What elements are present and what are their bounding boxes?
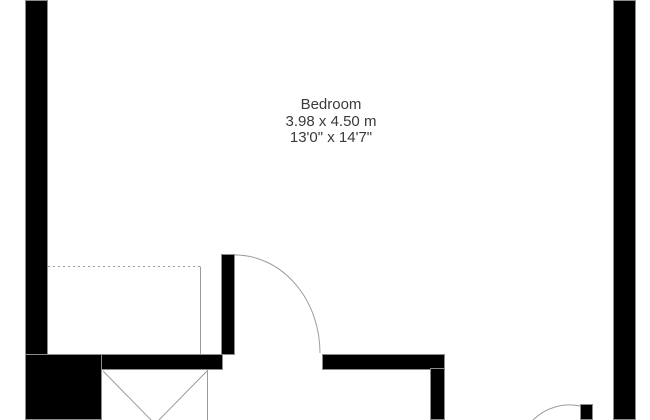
wall-corner-block [25,354,102,420]
bottom-door-swing-arc [533,405,580,420]
bedroom-door-swing-arc [235,255,320,353]
floor-plan: Bedroom 3.98 x 4.50 m 13'0" x 14'7" [0,0,650,420]
room-label: Bedroom 3.98 x 4.50 m 13'0" x 14'7" [48,97,614,147]
wall-right [613,0,636,420]
bottom-door-jamb [580,404,593,420]
room-dimensions-imperial: 13'0" x 14'7" [48,130,614,147]
wall-stub-right [430,368,445,420]
wardrobe-cross-line-2 [155,371,207,420]
room-name-text: Bedroom [48,97,614,114]
room-dimensions-metric: 3.98 x 4.50 m [48,114,614,131]
wall-bottom-right [322,354,445,370]
bedroom-door-leaf [221,254,235,355]
wardrobe-cross-line-1 [103,371,155,420]
